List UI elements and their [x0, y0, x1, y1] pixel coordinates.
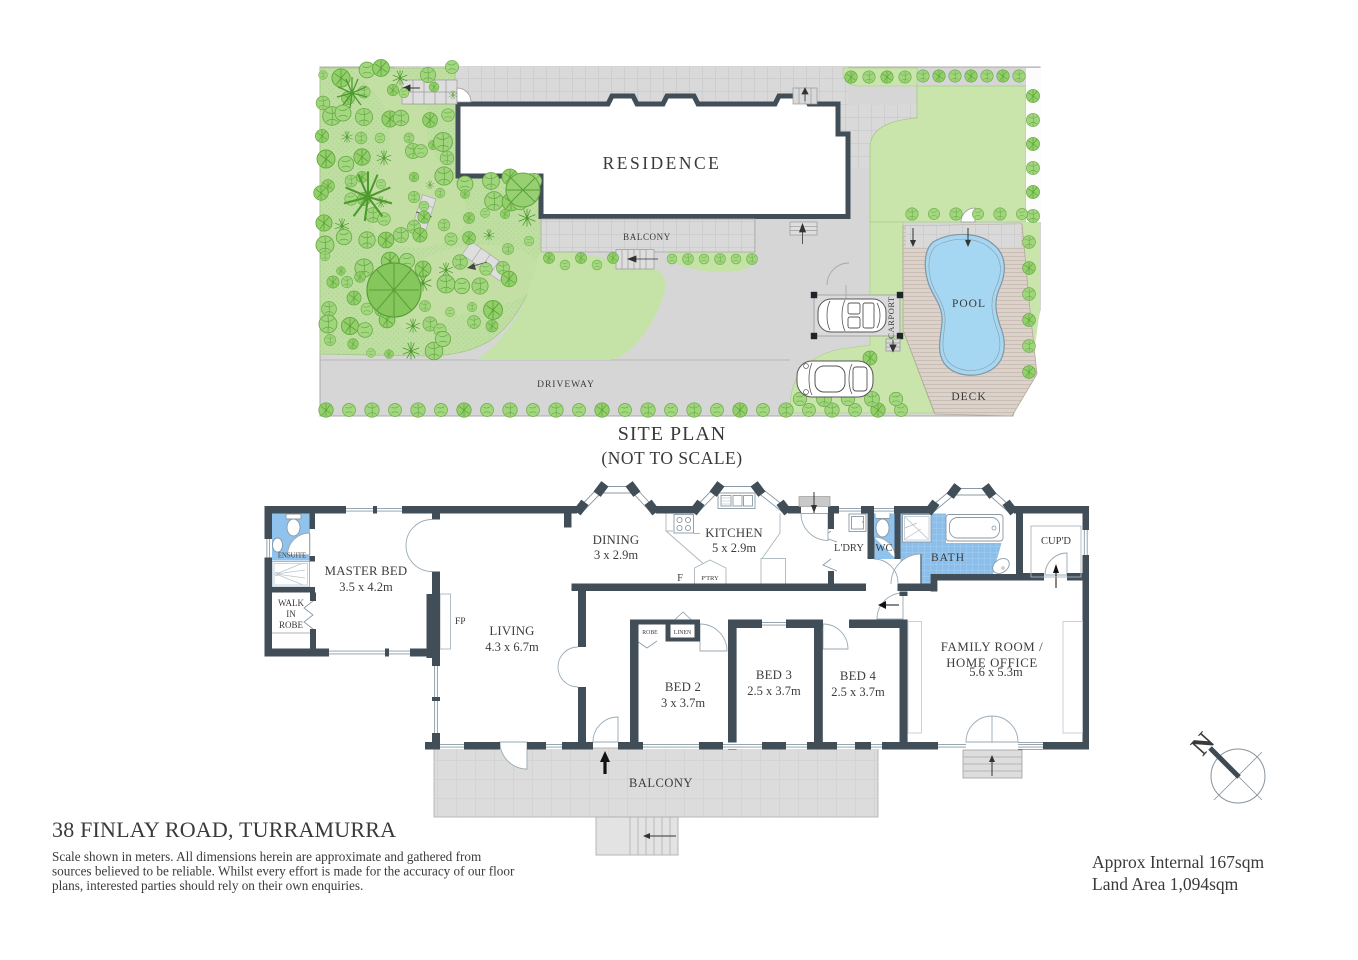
svg-text:FP: FP	[455, 617, 466, 627]
svg-text:BALCONY: BALCONY	[623, 232, 671, 242]
svg-text:sources believed to be reliab: sources believed to be reliable. Whilst …	[52, 864, 515, 879]
svg-text:FAMILY ROOM /: FAMILY ROOM /	[941, 640, 1044, 654]
svg-text:2.5 x 3.7m: 2.5 x 3.7m	[747, 684, 801, 698]
svg-text:MASTER BED: MASTER BED	[325, 564, 408, 578]
svg-text:WALK: WALK	[278, 598, 304, 608]
svg-text:ROBE: ROBE	[642, 630, 658, 636]
svg-text:F: F	[677, 573, 683, 584]
svg-text:CARPORT: CARPORT	[886, 296, 896, 339]
svg-text:Scale shown in meters. All dim: Scale shown in meters. All dimensions he…	[52, 849, 482, 864]
svg-text:DECK: DECK	[951, 391, 986, 403]
svg-text:BED 3: BED 3	[756, 668, 792, 682]
svg-text:ENSUITE: ENSUITE	[278, 553, 306, 560]
svg-text:plans, interested parties shou: plans, interested parties should rely on…	[52, 878, 363, 893]
svg-text:DINING: DINING	[593, 533, 640, 547]
svg-text:L'DRY: L'DRY	[834, 543, 864, 554]
svg-text:SITE PLAN: SITE PLAN	[618, 423, 726, 445]
svg-text:2.5 x 3.7m: 2.5 x 3.7m	[831, 685, 885, 699]
svg-text:BED 2: BED 2	[665, 680, 701, 694]
svg-text:IN: IN	[286, 609, 296, 619]
svg-text:4.3 x 6.7m: 4.3 x 6.7m	[485, 640, 539, 654]
svg-text:Approx Internal 167sqm: Approx Internal 167sqm	[1092, 852, 1264, 872]
svg-text:WC: WC	[876, 543, 893, 554]
svg-text:5.6 x 5.3m: 5.6 x 5.3m	[969, 665, 1023, 679]
svg-text:RESIDENCE: RESIDENCE	[603, 153, 722, 173]
svg-text:LIVING: LIVING	[489, 624, 534, 638]
svg-text:CUP'D: CUP'D	[1041, 536, 1071, 547]
svg-text:(NOT TO SCALE): (NOT TO SCALE)	[601, 448, 742, 468]
svg-text:Land Area 1,094sqm: Land Area 1,094sqm	[1092, 874, 1239, 894]
svg-text:BED 4: BED 4	[840, 669, 877, 683]
svg-text:3 x 2.9m: 3 x 2.9m	[594, 548, 638, 562]
svg-text:BATH: BATH	[931, 552, 965, 564]
svg-text:DRIVEWAY: DRIVEWAY	[537, 380, 595, 390]
svg-text:3 x 3.7m: 3 x 3.7m	[661, 696, 705, 710]
svg-text:LINEN: LINEN	[674, 630, 692, 636]
svg-text:POOL: POOL	[952, 298, 986, 310]
svg-text:5 x 2.9m: 5 x 2.9m	[712, 541, 756, 555]
svg-text:BALCONY: BALCONY	[629, 776, 693, 790]
svg-text:3.5 x 4.2m: 3.5 x 4.2m	[339, 580, 393, 594]
svg-text:P'TRY: P'TRY	[701, 575, 719, 582]
svg-text:ROBE: ROBE	[279, 620, 304, 630]
svg-text:KITCHEN: KITCHEN	[705, 526, 763, 540]
svg-text:38 FINLAY ROAD, TURRAMURRA: 38 FINLAY ROAD, TURRAMURRA	[52, 817, 396, 842]
